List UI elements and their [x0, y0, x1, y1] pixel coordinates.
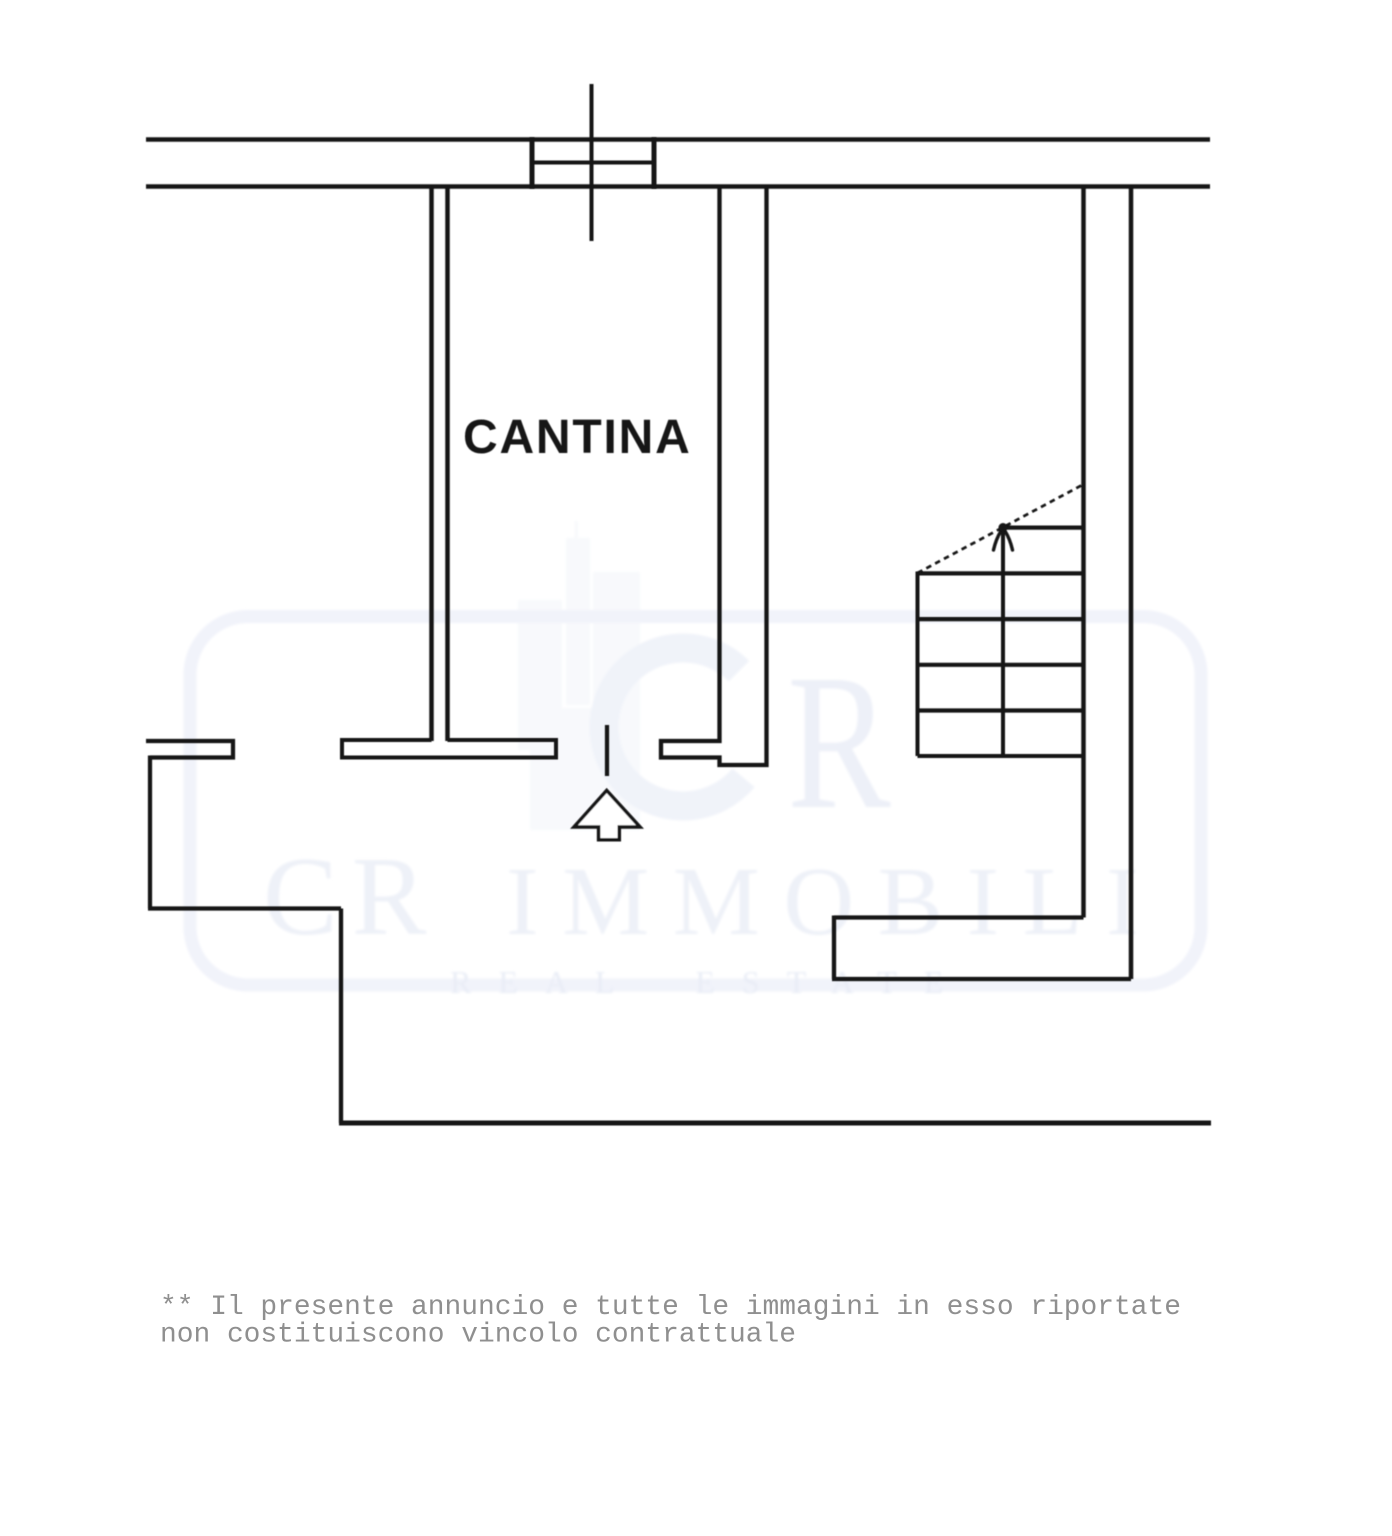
svg-text:CANTINA: CANTINA — [463, 411, 692, 464]
svg-text:non costituiscono vincolo cont: non costituiscono vincolo contrattuale — [160, 1320, 796, 1351]
svg-text:REAL ESTATE: REAL ESTATE — [450, 964, 970, 1000]
svg-text:** Il presente annuncio e tutt: ** Il presente annuncio e tutte le immag… — [160, 1292, 1181, 1323]
svg-text:R: R — [787, 634, 891, 849]
svg-text:CR: CR — [263, 835, 440, 959]
